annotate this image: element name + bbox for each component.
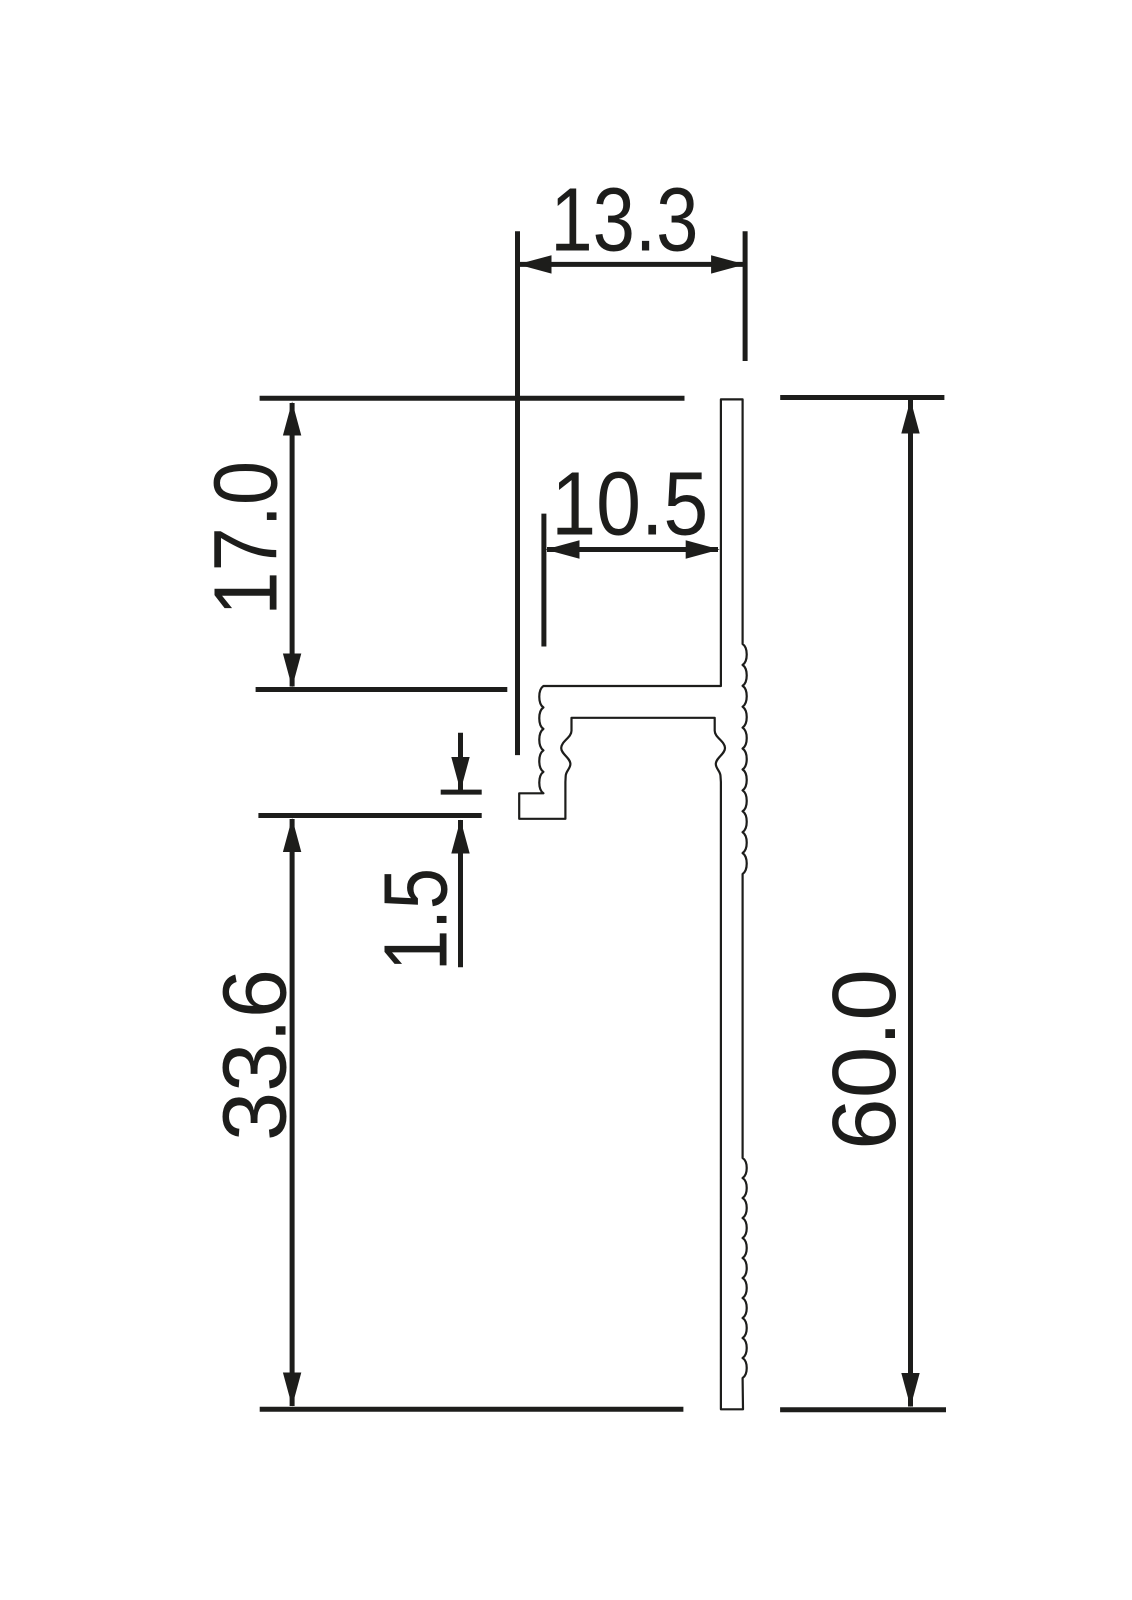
svg-text:33.6: 33.6 — [206, 969, 306, 1141]
svg-text:17.0: 17.0 — [196, 461, 296, 616]
svg-text:1.5: 1.5 — [366, 868, 466, 971]
svg-text:10.5: 10.5 — [551, 454, 708, 554]
svg-text:13.3: 13.3 — [550, 171, 698, 271]
svg-text:60.0: 60.0 — [815, 969, 915, 1150]
